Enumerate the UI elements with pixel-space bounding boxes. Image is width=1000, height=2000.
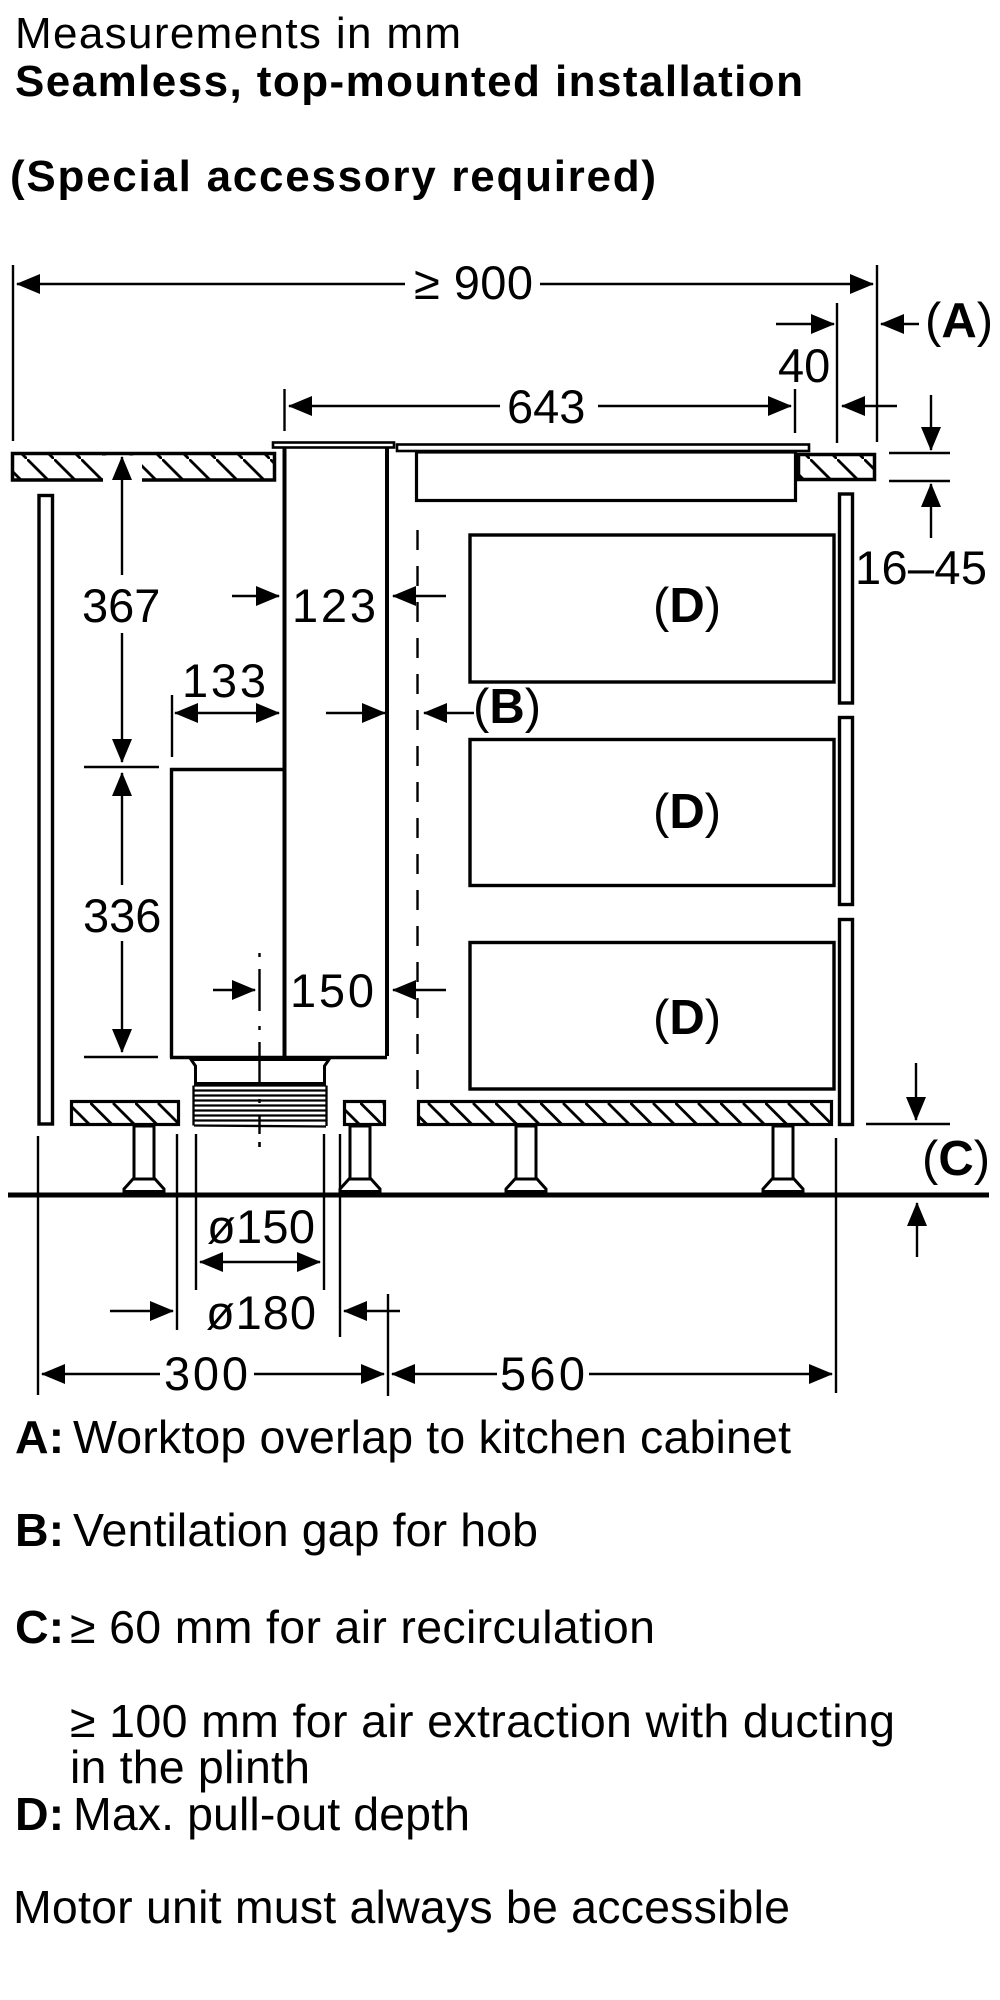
svg-text:Ventilation gap for hob: Ventilation gap for hob <box>73 1504 538 1556</box>
svg-text:(D): (D) <box>653 991 721 1045</box>
svg-text:40: 40 <box>778 339 830 392</box>
svg-text:≥ 900: ≥ 900 <box>414 256 533 309</box>
svg-text:(B): (B) <box>473 680 541 734</box>
svg-text:(C): (C) <box>922 1132 990 1186</box>
svg-text:ø180: ø180 <box>206 1286 316 1339</box>
svg-text:(Special accessory required): (Special accessory required) <box>10 152 656 201</box>
svg-text:336: 336 <box>83 889 161 942</box>
svg-text:Worktop overlap to kitchen cab: Worktop overlap to kitchen cabinet <box>73 1411 791 1463</box>
svg-text:Max. pull-out depth: Max. pull-out depth <box>73 1788 470 1840</box>
svg-text:300: 300 <box>164 1347 248 1400</box>
svg-text:(D): (D) <box>653 579 721 633</box>
svg-text:367: 367 <box>82 579 160 632</box>
svg-text:Motor unit must always be acce: Motor unit must always be accessible <box>13 1881 790 1933</box>
svg-text:C:: C: <box>15 1601 64 1653</box>
svg-text:≥ 60 mm for air recirculation: ≥ 60 mm for air recirculation <box>70 1601 655 1653</box>
svg-text:≥ 100 mm for air extraction wi: ≥ 100 mm for air extraction with ducting <box>70 1695 895 1747</box>
svg-text:16–45: 16–45 <box>855 541 987 594</box>
svg-text:123: 123 <box>292 579 376 632</box>
svg-text:150: 150 <box>290 964 374 1017</box>
svg-text:560: 560 <box>500 1347 585 1400</box>
svg-text:ø150: ø150 <box>207 1200 315 1253</box>
svg-text:Measurements in mm: Measurements in mm <box>15 9 461 58</box>
svg-text:Seamless, top-mounted installa: Seamless, top-mounted installation <box>15 57 803 106</box>
svg-text:in the plinth: in the plinth <box>70 1741 310 1793</box>
svg-text:643: 643 <box>507 380 585 433</box>
svg-text:D:: D: <box>15 1788 64 1840</box>
svg-text:(A): (A) <box>925 294 993 348</box>
svg-text:B:: B: <box>15 1504 64 1556</box>
svg-text:A:: A: <box>15 1411 64 1463</box>
svg-text:(D): (D) <box>653 785 721 839</box>
svg-text:133: 133 <box>182 654 266 707</box>
